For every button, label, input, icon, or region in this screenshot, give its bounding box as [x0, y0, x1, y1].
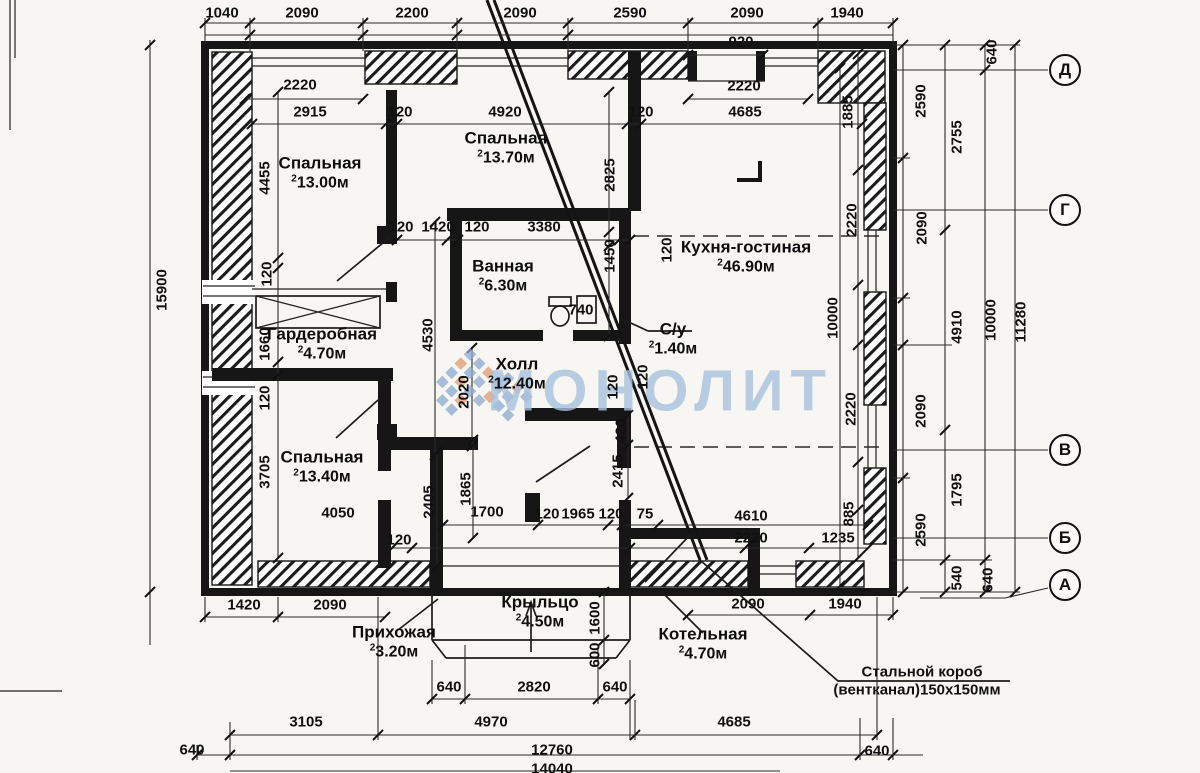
axis-circle-Д: Д [1049, 54, 1081, 86]
dimension-label: 2820 [517, 680, 550, 695]
dimension-label: 600 [588, 642, 603, 667]
axis-circle-А: А [1049, 569, 1081, 601]
dimension-label: 2915 [293, 105, 326, 120]
room-label: Спальная213.00м [279, 153, 362, 192]
dimension-label: 640 [985, 39, 1000, 64]
dimension-label: 2755 [950, 120, 965, 153]
dimension-label: 12760 [531, 743, 573, 758]
room-area: 23.20м [352, 642, 436, 662]
annotation-line-1: Стальной короб [862, 664, 983, 681]
dimension-label: 15900 [155, 269, 170, 311]
dimension-label: 2090 [730, 6, 763, 21]
dimension-label: 120 [260, 261, 275, 286]
dimension-label: 120 [387, 105, 412, 120]
dimension-label: 2590 [914, 84, 929, 117]
dimension-label: 4530 [421, 318, 436, 351]
dimension-label: 4050 [321, 506, 354, 521]
dimension-label: 2090 [914, 394, 929, 427]
dimension-label: 1885 [841, 95, 856, 128]
dimension-label: 4685 [717, 715, 750, 730]
dimension-label: 4920 [488, 105, 521, 120]
dimension-label: 2020 [457, 375, 472, 408]
dimension-label: 120 [636, 364, 651, 389]
dimension-label: 120 [534, 507, 559, 522]
dimension-label: 3705 [258, 455, 273, 488]
axis-circle-Г: Г [1049, 194, 1081, 226]
dimension-label: 120 [660, 237, 675, 262]
axis-circle-В: В [1049, 434, 1081, 466]
dimension-label: 2220 [283, 78, 316, 93]
dimension-label: 120 [388, 220, 413, 235]
dimension-label: 885 [842, 501, 857, 526]
dimension-label: 1965 [561, 507, 594, 522]
dimension-label: 10000 [826, 297, 841, 339]
dimension-label: 1865 [459, 472, 474, 505]
dimension-label: 75 [637, 507, 654, 522]
dimension-label: 10000 [984, 299, 999, 341]
dimension-label: 1040 [205, 6, 238, 21]
room-label: Прихожая23.20м [352, 622, 436, 661]
dimension-label: 2090 [285, 6, 318, 21]
room-area: 213.00м [279, 173, 362, 193]
dimension-label: 2405 [422, 485, 437, 518]
dimension-label: 1795 [950, 473, 965, 506]
dimension-label: 2220 [845, 203, 860, 236]
room-name: Котельная [658, 624, 747, 644]
room-name: Прихожая [352, 622, 436, 642]
dimension-label: 1420 [421, 220, 454, 235]
dimension-label: 2200 [395, 6, 428, 21]
room-name: Ванная [472, 256, 534, 276]
dimension-label: 4455 [258, 161, 273, 194]
dimension-label: 920 [728, 35, 753, 50]
dimension-label: 2220 [844, 392, 859, 425]
floor-plan-sheet: МОНОЛИТ Стальной короб (вентканал)150x15… [0, 0, 1200, 773]
dimension-label: 120 [598, 507, 623, 522]
dimension-label: 120 [464, 220, 489, 235]
dimension-label: 4610 [734, 509, 767, 524]
dimension-label: 2090 [731, 597, 764, 612]
room-name: С/у [649, 319, 698, 339]
dimension-label: 2825 [603, 158, 618, 191]
dimension-label: 1700 [470, 505, 503, 520]
room-name: Гардеробная [267, 324, 377, 344]
room-label: Кухня-гостиная246.90м [681, 237, 811, 276]
room-area: 24.70м [658, 644, 747, 664]
room-area: 26.30м [472, 276, 534, 296]
dimension-label: 540 [950, 565, 965, 590]
room-area: 24.70м [267, 344, 377, 364]
axis-circle-Б: Б [1049, 522, 1081, 554]
dimension-label: 1450 [603, 239, 618, 272]
room-area: 212.40м [488, 374, 545, 394]
room-label: Спальная213.40м [281, 447, 364, 486]
dimension-label: 120 [606, 374, 621, 399]
room-name: Спальная [279, 153, 362, 173]
dimension-label: 2220 [734, 531, 767, 546]
dimension-label: 14040 [531, 762, 573, 773]
room-label: Ванная26.30м [472, 256, 534, 295]
dimension-label: 2090 [915, 211, 930, 244]
dimension-label: 1940 [830, 6, 863, 21]
room-area: 21.40м [649, 339, 698, 359]
dimension-label: 2090 [313, 598, 346, 613]
annotation-line-2: (вентканал)150x150мм [833, 682, 1000, 699]
room-name: Кухня-гостиная [681, 237, 811, 257]
room-name: Спальная [281, 447, 364, 467]
room-label: Спальная213.70м [465, 128, 548, 167]
dimension-label: 2220 [727, 79, 760, 94]
dimension-label: 120 [628, 105, 653, 120]
room-name: Спальная [465, 128, 548, 148]
dimension-label: 3105 [289, 715, 322, 730]
dimension-label: 2590 [613, 6, 646, 21]
dimension-label: 1940 [828, 597, 861, 612]
dimension-label: 2590 [914, 513, 929, 546]
dimension-label: 640 [981, 567, 996, 592]
room-area: 213.40м [281, 467, 364, 487]
dimension-label: 3380 [527, 220, 560, 235]
dimension-label: 4910 [950, 310, 965, 343]
dimension-label: 2415 [611, 454, 626, 487]
dimension-label: 640 [602, 680, 627, 695]
room-name: Холл [488, 354, 545, 374]
room-area: 24.50м [501, 612, 578, 632]
dimension-label: 740 [568, 303, 593, 318]
dimension-label: 2090 [503, 6, 536, 21]
room-label: Гардеробная24.70м [267, 324, 377, 363]
room-label: Крыльцо24.50м [501, 592, 578, 631]
dimension-label: 4970 [474, 715, 507, 730]
dimension-label: 4685 [728, 105, 761, 120]
room-label: С/у21.40м [649, 319, 698, 358]
dimension-label: 1420 [227, 598, 260, 613]
room-label: Котельная24.70м [658, 624, 747, 663]
dimension-label: 11280 [1014, 302, 1029, 343]
room-name: Крыльцо [501, 592, 578, 612]
dimension-label: 1600 [588, 601, 603, 634]
room-label: Холл212.40м [488, 354, 545, 393]
dimension-label: 420 [614, 418, 629, 443]
dimension-label: 640 [436, 680, 461, 695]
dimension-label: 1235 [821, 531, 854, 546]
dimension-label: 120 [386, 533, 411, 548]
dimension-label: 640 [864, 744, 889, 759]
dimension-label: 640 [179, 743, 204, 758]
dimension-label: 120 [258, 385, 273, 410]
room-area: 213.70м [465, 148, 548, 168]
room-area: 246.90м [681, 257, 811, 277]
labels-layer: МОНОЛИТ Стальной короб (вентканал)150x15… [0, 0, 1200, 773]
